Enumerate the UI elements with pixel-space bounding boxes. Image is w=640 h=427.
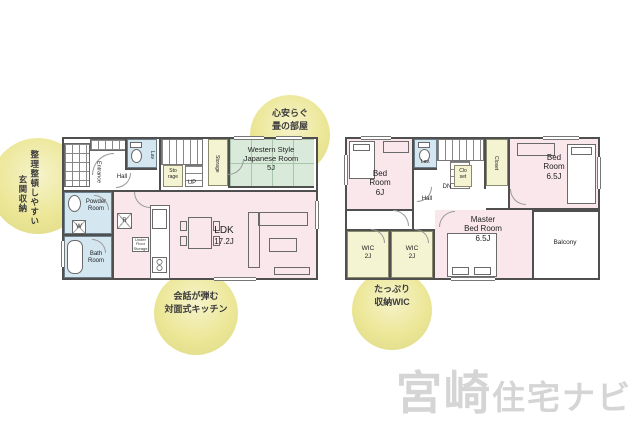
low-table-icon bbox=[269, 238, 297, 252]
kitchen-sink-icon bbox=[152, 209, 167, 229]
annotation-wic: たっぷり 収納WIC bbox=[352, 283, 432, 308]
desk-icon bbox=[383, 141, 409, 153]
storage-small-line2: rage bbox=[163, 175, 183, 181]
powder-room-label: Powder Room bbox=[80, 199, 112, 213]
under-floor-storage-box: Under Floor Storage bbox=[132, 237, 149, 252]
toilet-tank-icon bbox=[418, 142, 430, 148]
master-line1: Master bbox=[447, 215, 519, 224]
annotation-kitchen-line2: 対面式キッチン bbox=[150, 303, 242, 316]
wall bbox=[508, 139, 510, 208]
annotation-entrance-storage-line2: 玄関収納 bbox=[16, 150, 28, 224]
powder-room-line1: Powder bbox=[80, 199, 112, 206]
wic1-name: WIC bbox=[353, 245, 383, 253]
pillow-icon bbox=[474, 267, 491, 275]
window-marker bbox=[361, 136, 391, 140]
bed-room-65-line2: Room bbox=[529, 162, 579, 171]
bath-room-label: Bath Room bbox=[80, 251, 112, 265]
window-marker bbox=[214, 277, 256, 281]
storage-small-label: Sto rage bbox=[163, 169, 183, 181]
pillow-icon bbox=[353, 144, 370, 151]
window-marker bbox=[276, 136, 302, 140]
ldk-name: LDK bbox=[202, 225, 246, 237]
sofa-icon bbox=[258, 212, 308, 226]
wall bbox=[64, 190, 316, 192]
bath-room-line1: Bath bbox=[80, 251, 112, 258]
annotation-tatami-line2: 畳の部屋 bbox=[250, 120, 330, 133]
window-marker bbox=[61, 241, 65, 267]
bath-room-line2: Room bbox=[80, 258, 112, 265]
stove-icon bbox=[152, 257, 167, 273]
window-marker bbox=[597, 157, 601, 189]
entrance-label: Entrance bbox=[95, 152, 101, 192]
wall bbox=[484, 139, 486, 189]
western-room-size: 5J bbox=[230, 164, 312, 173]
wall bbox=[412, 139, 414, 231]
annotation-kitchen: 会話が弾む 対面式キッチン bbox=[150, 290, 242, 315]
wall bbox=[159, 139, 161, 190]
ldk-size: 17.2J bbox=[202, 237, 246, 246]
stairs-down-label: DN bbox=[435, 184, 459, 191]
chair-icon bbox=[180, 221, 187, 231]
wall bbox=[433, 231, 435, 278]
watermark-brand-large: 宮崎 bbox=[396, 357, 492, 423]
highlight-circle-wic bbox=[352, 270, 432, 350]
watermark-brand-small: 住宅ナビ bbox=[492, 371, 632, 419]
floor-plan-image: 宮崎 住宅ナビ W bbox=[0, 0, 640, 427]
door-arc-bed6 bbox=[393, 210, 409, 226]
bed-room-65-label: Bed Room 6.5J bbox=[529, 153, 579, 181]
bed-room-65-line1: Bed bbox=[529, 153, 579, 162]
annotation-entrance-storage-line1: 整理整頓しやすい bbox=[28, 150, 40, 224]
chair-icon bbox=[180, 236, 187, 246]
watermark: 宮崎 住宅ナビ bbox=[396, 357, 632, 423]
pillow-icon bbox=[452, 267, 469, 275]
lavatory-label-2f: Lav. bbox=[414, 160, 437, 166]
toilet-tank-icon bbox=[130, 142, 142, 148]
washing-machine-label: W bbox=[76, 224, 82, 230]
bed-room-6-size: 6J bbox=[355, 188, 405, 197]
bed-room-6-line2: Room bbox=[355, 178, 405, 187]
sofa-icon bbox=[248, 212, 260, 268]
under-floor-storage-label: Storage bbox=[133, 247, 148, 251]
tv-board-icon bbox=[274, 267, 310, 275]
western-room-label: Western Style Japanese Room 5J bbox=[230, 146, 312, 173]
window-marker bbox=[543, 136, 579, 140]
bed-room-6-line1: Bed bbox=[355, 169, 405, 178]
closet-small-label: Clo set bbox=[454, 169, 472, 181]
window-marker bbox=[451, 277, 495, 281]
annotation-wic-line1: たっぷり bbox=[352, 283, 432, 296]
closet-tall-label: Closet bbox=[492, 147, 498, 179]
annotation-kitchen-line1: 会話が弾む bbox=[150, 290, 242, 303]
wall bbox=[125, 168, 157, 170]
stairs-up-run bbox=[161, 139, 203, 165]
toilet-bowl-icon bbox=[131, 149, 142, 163]
first-floor-plan: W R Under Floor Storage Entrance Hall La… bbox=[62, 137, 318, 280]
master-line2: Bed Room bbox=[447, 224, 519, 233]
window-marker bbox=[315, 201, 319, 229]
balcony-label: Balcony bbox=[542, 239, 588, 247]
second-floor-plan: Bed Room 6J Lav. DN Hall Clo set Closet … bbox=[345, 137, 600, 280]
refrigerator-icon: R bbox=[117, 213, 132, 229]
wall bbox=[389, 231, 391, 278]
stairs-down-run bbox=[437, 139, 484, 161]
annotation-tatami: 心安らぐ 畳の部屋 bbox=[250, 107, 330, 132]
washing-machine-icon: W bbox=[72, 220, 86, 234]
wall bbox=[64, 234, 112, 236]
bed-room-6-label: Bed Room 6J bbox=[355, 169, 405, 197]
wall bbox=[414, 168, 437, 170]
window-marker bbox=[344, 155, 348, 185]
ldk-label: LDK 17.2J bbox=[202, 225, 246, 246]
refrigerator-label: R bbox=[122, 218, 126, 224]
wic1-size: 2J bbox=[353, 253, 383, 261]
closet-small-line2: set bbox=[454, 175, 472, 181]
wall bbox=[347, 209, 414, 211]
annotation-entrance-storage: 整理整頓しやすい 玄関収納 bbox=[16, 150, 40, 224]
master-size: 6.5J bbox=[447, 234, 519, 243]
wic2-label: WIC 2J bbox=[397, 245, 427, 260]
bed-room-65-size: 6.5J bbox=[529, 172, 579, 181]
lavatory-label-1f: Lav bbox=[148, 144, 154, 166]
wic1-label: WIC 2J bbox=[353, 245, 383, 260]
wall bbox=[125, 139, 127, 168]
hall-label-1f: Hall bbox=[110, 174, 134, 181]
hall-label-2f: Hall bbox=[415, 196, 439, 203]
wic2-name: WIC bbox=[397, 245, 427, 253]
annotation-tatami-line1: 心安らぐ bbox=[250, 107, 330, 120]
wic2-size: 2J bbox=[397, 253, 427, 261]
wall bbox=[486, 208, 598, 210]
wall bbox=[112, 192, 114, 278]
annotation-wic-line2: 収納WIC bbox=[352, 296, 432, 309]
window-marker bbox=[234, 136, 264, 140]
stairs-up-label: UP bbox=[182, 180, 202, 187]
powder-room-line2: Room bbox=[80, 206, 112, 213]
entrance-shoe-storage-grid bbox=[64, 143, 90, 187]
master-bed-room-label: Master Bed Room 6.5J bbox=[447, 215, 519, 243]
storage-tall-label: Storage bbox=[213, 146, 219, 182]
